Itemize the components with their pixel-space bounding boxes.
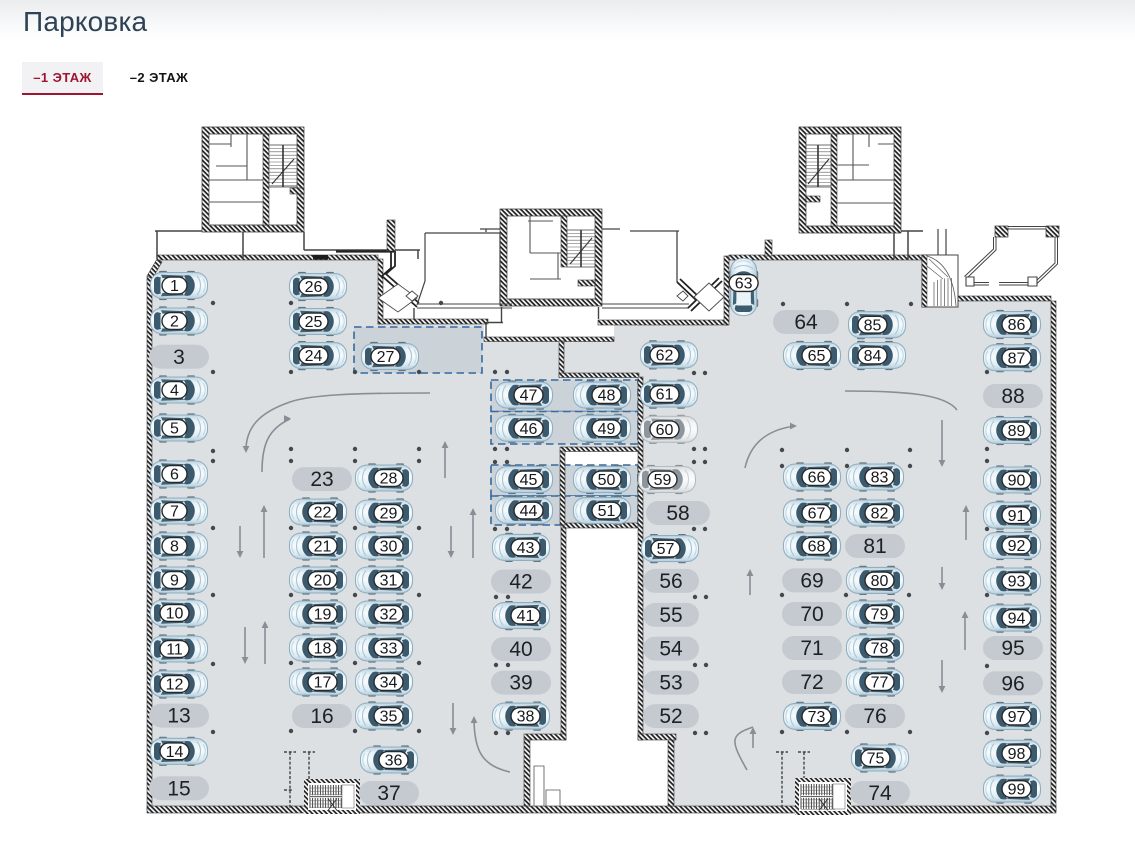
svg-text:90: 90 [1008, 473, 1026, 490]
svg-text:53: 53 [659, 672, 682, 695]
svg-text:62: 62 [656, 348, 674, 365]
svg-text:50: 50 [598, 472, 616, 489]
svg-text:18: 18 [314, 641, 332, 658]
svg-text:24: 24 [305, 348, 323, 365]
svg-text:23: 23 [310, 468, 333, 491]
svg-text:92: 92 [1008, 538, 1026, 555]
svg-text:97: 97 [1008, 709, 1026, 726]
svg-text:89: 89 [1008, 423, 1026, 440]
svg-text:83: 83 [871, 470, 889, 487]
svg-text:25: 25 [305, 314, 323, 331]
svg-text:6: 6 [170, 467, 179, 484]
svg-text:40: 40 [509, 638, 532, 661]
svg-text:60: 60 [656, 422, 674, 439]
svg-text:26: 26 [305, 279, 323, 296]
svg-text:85: 85 [864, 317, 882, 334]
svg-text:73: 73 [808, 709, 826, 726]
svg-text:48: 48 [598, 388, 616, 405]
svg-text:55: 55 [659, 604, 682, 627]
svg-text:37: 37 [377, 782, 400, 805]
svg-text:30: 30 [380, 539, 398, 556]
svg-text:72: 72 [800, 671, 823, 694]
svg-text:52: 52 [659, 705, 682, 728]
svg-text:21: 21 [314, 539, 332, 556]
svg-text:63: 63 [735, 276, 753, 293]
svg-text:49: 49 [598, 421, 616, 438]
svg-text:84: 84 [864, 348, 882, 365]
svg-text:77: 77 [871, 675, 889, 692]
svg-text:39: 39 [509, 672, 532, 695]
svg-text:98: 98 [1008, 746, 1026, 763]
svg-text:76: 76 [863, 705, 886, 728]
svg-text:17: 17 [314, 675, 332, 692]
svg-text:66: 66 [808, 470, 826, 487]
svg-text:14: 14 [166, 744, 184, 761]
svg-text:86: 86 [1008, 317, 1026, 334]
svg-text:15: 15 [167, 777, 190, 800]
svg-text:47: 47 [520, 388, 538, 405]
svg-text:87: 87 [1008, 350, 1026, 367]
svg-text:74: 74 [868, 782, 892, 805]
svg-text:42: 42 [509, 571, 532, 594]
svg-text:99: 99 [1008, 782, 1026, 799]
svg-text:19: 19 [314, 607, 332, 624]
svg-text:51: 51 [598, 503, 616, 520]
svg-text:67: 67 [808, 506, 826, 523]
svg-text:69: 69 [800, 569, 823, 592]
svg-text:93: 93 [1008, 574, 1026, 591]
svg-text:10: 10 [166, 606, 184, 623]
svg-text:61: 61 [656, 387, 674, 404]
svg-text:28: 28 [380, 471, 398, 488]
svg-text:8: 8 [170, 539, 179, 556]
svg-text:5: 5 [170, 421, 179, 438]
svg-text:31: 31 [380, 573, 398, 590]
svg-text:33: 33 [380, 641, 398, 658]
svg-text:80: 80 [871, 573, 889, 590]
svg-text:54: 54 [659, 638, 683, 661]
svg-text:13: 13 [167, 705, 190, 728]
svg-text:71: 71 [800, 637, 823, 660]
svg-text:94: 94 [1008, 611, 1026, 628]
svg-text:29: 29 [380, 506, 398, 523]
svg-text:81: 81 [863, 535, 886, 558]
svg-text:44: 44 [520, 503, 538, 520]
svg-text:95: 95 [1001, 637, 1024, 660]
svg-text:1: 1 [170, 278, 179, 295]
svg-text:70: 70 [800, 603, 823, 626]
svg-text:82: 82 [871, 506, 889, 523]
svg-text:7: 7 [170, 504, 179, 521]
svg-text:78: 78 [871, 641, 889, 658]
svg-text:3: 3 [173, 346, 185, 369]
svg-text:57: 57 [657, 541, 675, 558]
svg-text:64: 64 [794, 311, 818, 334]
svg-text:88: 88 [1001, 385, 1024, 408]
svg-text:65: 65 [808, 348, 826, 365]
svg-text:9: 9 [170, 573, 179, 590]
svg-text:12: 12 [166, 677, 184, 694]
svg-text:36: 36 [385, 753, 403, 770]
svg-text:59: 59 [654, 472, 672, 489]
svg-text:43: 43 [517, 540, 535, 557]
svg-text:38: 38 [517, 709, 535, 726]
svg-text:11: 11 [166, 642, 183, 659]
svg-text:75: 75 [867, 751, 885, 768]
svg-text:2: 2 [170, 314, 179, 331]
svg-text:46: 46 [520, 421, 538, 438]
svg-text:68: 68 [808, 539, 826, 556]
svg-text:4: 4 [170, 383, 179, 400]
svg-text:79: 79 [871, 607, 889, 624]
svg-text:32: 32 [380, 607, 398, 624]
svg-text:16: 16 [310, 705, 333, 728]
svg-text:45: 45 [520, 472, 538, 489]
svg-text:96: 96 [1001, 672, 1024, 695]
svg-text:20: 20 [314, 573, 332, 590]
svg-text:56: 56 [659, 570, 682, 593]
svg-text:35: 35 [380, 709, 398, 726]
svg-text:91: 91 [1008, 508, 1026, 525]
svg-text:34: 34 [380, 675, 398, 692]
svg-text:41: 41 [517, 608, 535, 625]
svg-text:22: 22 [314, 505, 332, 522]
svg-text:58: 58 [666, 502, 689, 525]
svg-text:27: 27 [377, 349, 395, 366]
